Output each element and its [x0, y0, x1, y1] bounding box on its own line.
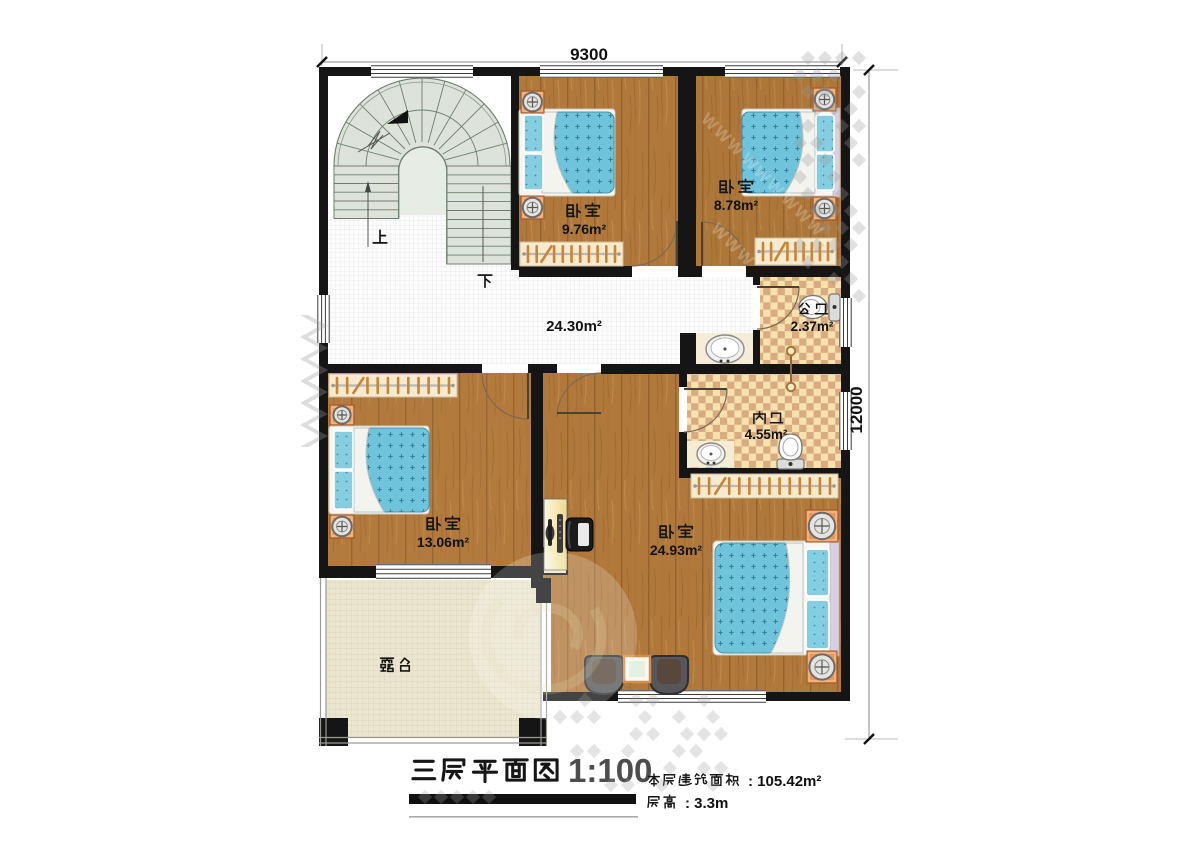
svg-text:12000: 12000	[847, 386, 866, 433]
svg-text:4.55m²: 4.55m²	[745, 427, 788, 442]
svg-text:2.37m²: 2.37m²	[791, 319, 834, 334]
svg-text:9.76m²: 9.76m²	[562, 221, 607, 237]
svg-text:: 3.3m: : 3.3m	[685, 795, 728, 812]
svg-text:8.78m²: 8.78m²	[714, 197, 759, 213]
svg-text:: 105.42m²: : 105.42m²	[748, 773, 821, 790]
svg-text:24.30m²: 24.30m²	[546, 318, 602, 335]
svg-text:24.93m²: 24.93m²	[650, 542, 702, 558]
svg-text:9300: 9300	[570, 45, 608, 64]
svg-text:13.06m²: 13.06m²	[417, 534, 469, 550]
